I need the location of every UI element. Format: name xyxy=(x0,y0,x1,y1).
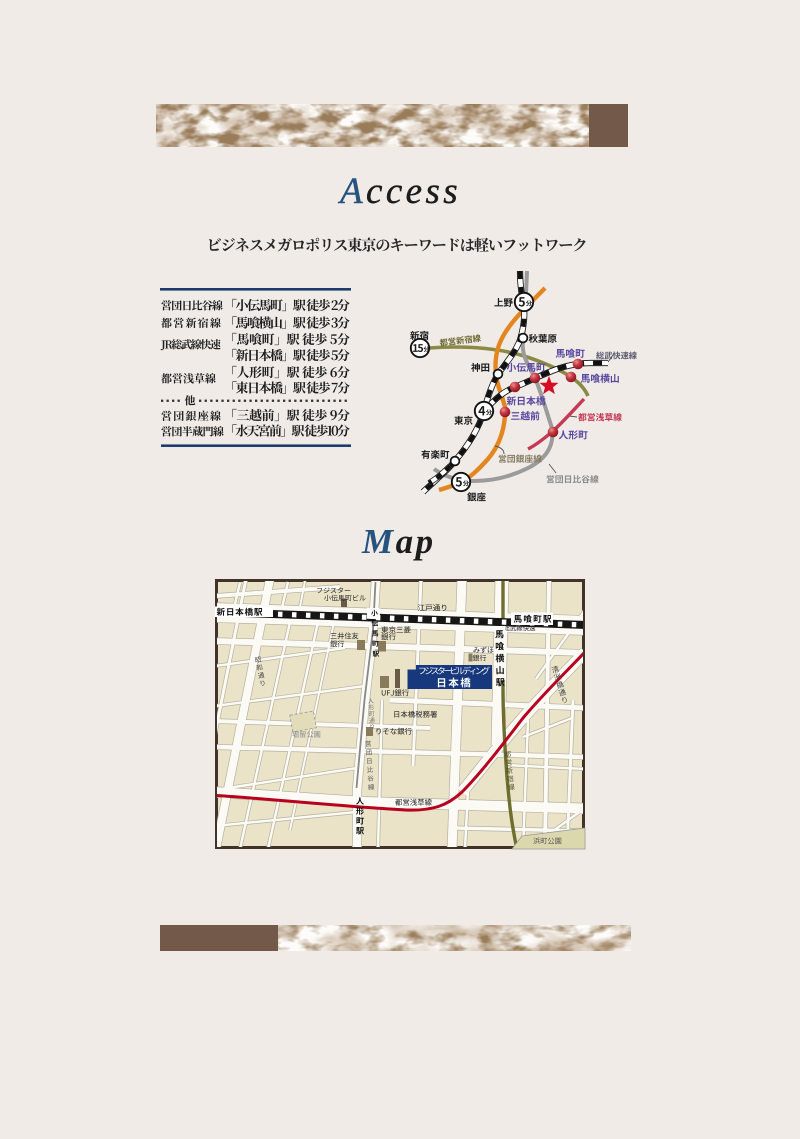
svg-text:Access: Access xyxy=(337,171,461,212)
svg-text:Map: Map xyxy=(361,522,436,561)
